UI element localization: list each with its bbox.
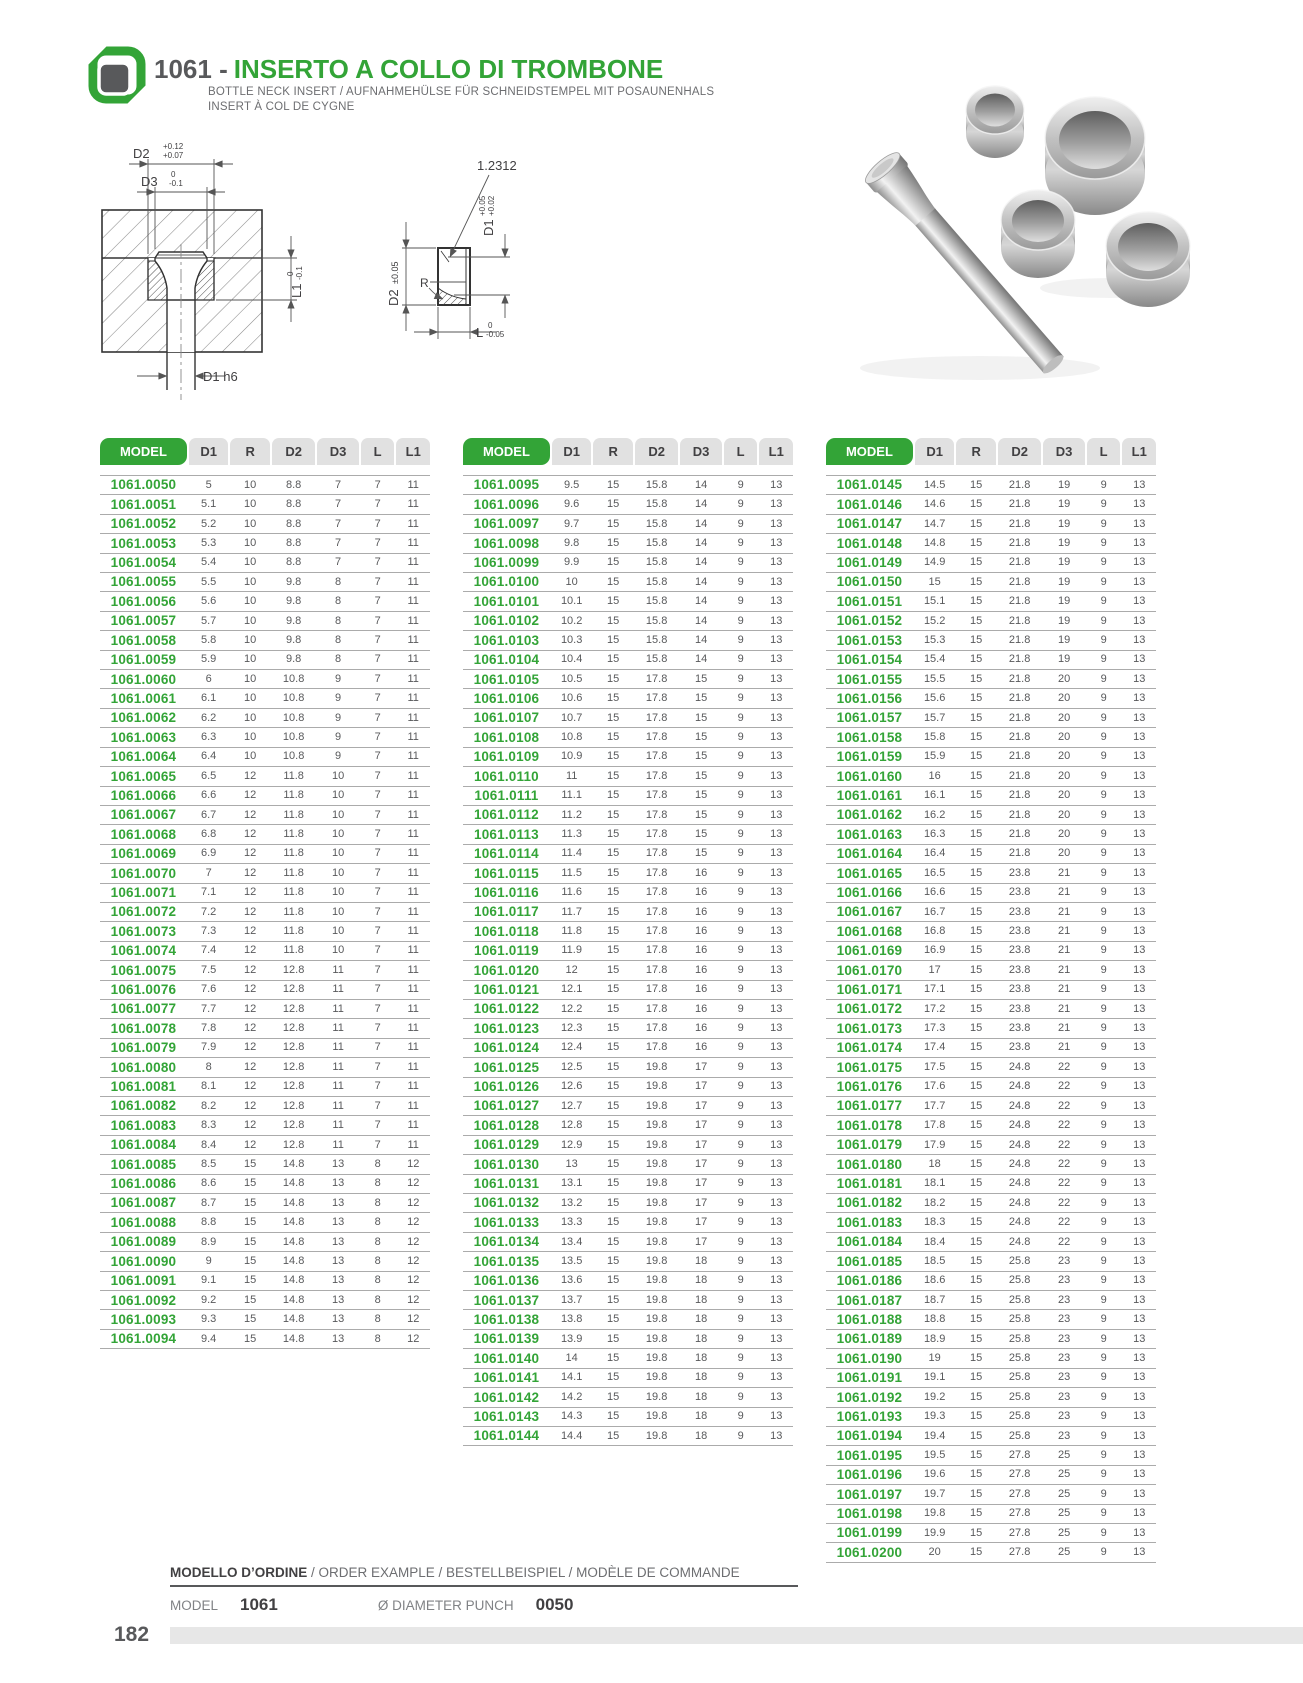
value-cell: 21.8 (998, 654, 1041, 665)
value-cell: 15.8 (635, 557, 678, 568)
model-cell: 1061.0078 (100, 1022, 187, 1036)
value-cell: 11 (396, 732, 430, 743)
model-cell: 1061.0148 (826, 537, 913, 551)
table-row: 1061.019319.31525.823913 (826, 1408, 1156, 1427)
value-cell: 27.8 (998, 1547, 1041, 1558)
value-cell: 11 (396, 713, 430, 724)
table-row: 1061.017217.21523.821913 (826, 1000, 1156, 1019)
value-cell: 13.8 (552, 1314, 592, 1325)
value-cell: 25.8 (998, 1372, 1041, 1383)
value-cell: 9.3 (189, 1314, 229, 1325)
value-cell: 15 (593, 616, 633, 627)
table-row: 1061.016316.31521.820913 (826, 825, 1156, 844)
table-row: 1061.010810.81517.815913 (463, 728, 793, 747)
value-cell: 9 (1087, 887, 1121, 898)
model-cell: 1061.0149 (826, 556, 913, 570)
value-cell: 19.8 (635, 1295, 678, 1306)
value-cell: 9.8 (272, 654, 315, 665)
dim-l-label: L (476, 325, 483, 340)
value-cell: 10.7 (552, 713, 592, 724)
value-cell: 11 (396, 1140, 430, 1151)
value-cell: 11 (396, 771, 430, 782)
model-cell: 1061.0179 (826, 1138, 913, 1152)
value-cell: 11 (317, 1023, 358, 1034)
model-cell: 1061.0068 (100, 828, 187, 842)
value-cell: 19.8 (635, 1217, 678, 1228)
value-cell: 12.5 (552, 1062, 592, 1073)
value-cell: 19 (1043, 519, 1084, 530)
value-cell: 9 (724, 732, 758, 743)
column-header: D2 (998, 438, 1041, 465)
value-cell: 24.8 (998, 1120, 1041, 1131)
value-cell: 12.6 (552, 1081, 592, 1092)
value-cell: 10 (317, 829, 358, 840)
model-cell: 1061.0127 (463, 1099, 550, 1113)
model-cell: 1061.0139 (463, 1332, 550, 1346)
brand-logo-icon (88, 46, 146, 104)
model-table-3: MODELD1RD2D3LL11061.014514.51521.8199131… (826, 438, 1156, 1563)
value-cell: 14.8 (272, 1159, 315, 1170)
table-body: 1061.00505108.877111061.00515.1108.87711… (100, 475, 430, 1349)
value-cell: 9 (724, 1198, 758, 1209)
table-row: 1061.0130131519.817913 (463, 1155, 793, 1174)
value-cell: 17.8 (635, 829, 678, 840)
value-cell: 12.8 (272, 984, 315, 995)
value-cell: 7 (361, 848, 395, 859)
table-row: 1061.012912.91519.817913 (463, 1136, 793, 1155)
value-cell: 13 (1122, 1431, 1156, 1442)
table-row: 1061.018618.61525.823913 (826, 1272, 1156, 1291)
value-cell: 15 (593, 499, 633, 510)
value-cell: 7 (361, 907, 395, 918)
model-cell: 1061.0064 (100, 750, 187, 764)
value-cell: 15 (593, 1275, 633, 1286)
value-cell: 13 (1122, 1411, 1156, 1422)
value-cell: 18.2 (915, 1198, 955, 1209)
value-cell: 15 (593, 1353, 633, 1364)
value-cell: 15 (956, 1023, 996, 1034)
value-cell: 15 (230, 1295, 270, 1306)
value-cell: 11 (396, 1120, 430, 1131)
value-cell: 12.9 (552, 1140, 592, 1151)
value-cell: 21 (1043, 965, 1084, 976)
model-cell: 1061.0072 (100, 905, 187, 919)
value-cell: 18.7 (915, 1295, 955, 1306)
value-cell: 15 (680, 693, 721, 704)
value-cell: 24.8 (998, 1081, 1041, 1092)
value-cell: 7 (361, 674, 395, 685)
value-cell: 17 (915, 965, 955, 976)
model-cell: 1061.0191 (826, 1371, 913, 1385)
table-row: 1061.012312.31517.816913 (463, 1019, 793, 1038)
value-cell: 13 (759, 1237, 793, 1248)
value-cell: 23 (1043, 1392, 1084, 1403)
value-cell: 9 (724, 1353, 758, 1364)
value-cell: 9.1 (189, 1275, 229, 1286)
table-row: 1061.00888.81514.813812 (100, 1213, 430, 1232)
value-cell: 8 (361, 1295, 395, 1306)
model-cell: 1061.0061 (100, 692, 187, 706)
model-cell: 1061.0097 (463, 517, 550, 531)
value-cell: 9 (724, 557, 758, 568)
value-cell: 11 (396, 829, 430, 840)
table-body: 1061.00959.51515.8149131061.00969.61515.… (463, 475, 793, 1446)
value-cell: 23 (1043, 1295, 1084, 1306)
value-cell: 15 (593, 1237, 633, 1248)
table-row: 1061.012212.21517.816913 (463, 1000, 793, 1019)
value-cell: 7.4 (189, 945, 229, 956)
value-cell: 18 (680, 1295, 721, 1306)
model-cell: 1061.0190 (826, 1352, 913, 1366)
value-cell: 8.8 (272, 557, 315, 568)
value-cell: 9 (1087, 1314, 1121, 1325)
value-cell: 10 (230, 480, 270, 491)
value-cell: 10 (230, 616, 270, 627)
value-cell: 11 (396, 965, 430, 976)
table-row: 1061.016816.81523.821913 (826, 922, 1156, 941)
table-row: 1061.011111.11517.815913 (463, 787, 793, 806)
value-cell: 8 (361, 1314, 395, 1325)
table-row: 1061.016216.21521.820913 (826, 806, 1156, 825)
model-cell: 1061.0117 (463, 905, 550, 919)
value-cell: 6.8 (189, 829, 229, 840)
value-cell: 24.8 (998, 1198, 1041, 1209)
model-cell: 1061.0052 (100, 517, 187, 531)
value-cell: 15 (593, 1159, 633, 1170)
value-cell: 7 (361, 635, 395, 646)
value-cell: 13 (759, 519, 793, 530)
value-cell: 23 (1043, 1334, 1084, 1345)
value-cell: 15 (593, 1217, 633, 1228)
table-row: 1061.013113.11519.817913 (463, 1175, 793, 1194)
value-cell: 15.8 (635, 654, 678, 665)
table-row: 1061.00777.71212.811711 (100, 1000, 430, 1019)
value-cell: 12 (230, 926, 270, 937)
value-cell: 10 (230, 751, 270, 762)
value-cell: 21.8 (998, 674, 1041, 685)
value-cell: 25 (1043, 1508, 1084, 1519)
value-cell: 16.5 (915, 868, 955, 879)
value-cell: 5.2 (189, 519, 229, 530)
value-cell: 9 (1087, 1178, 1121, 1189)
value-cell: 13 (759, 771, 793, 782)
model-cell: 1061.0087 (100, 1196, 187, 1210)
value-cell: 8 (361, 1217, 395, 1228)
value-cell: 15 (593, 829, 633, 840)
value-cell: 15 (593, 577, 633, 588)
model-cell: 1061.0119 (463, 944, 550, 958)
table-row: 1061.017817.81524.822913 (826, 1116, 1156, 1135)
value-cell: 15 (680, 848, 721, 859)
value-cell: 21 (1043, 907, 1084, 918)
value-cell: 9 (724, 1256, 758, 1267)
table-row: 1061.00636.31010.89711 (100, 728, 430, 747)
model-cell: 1061.0095 (463, 478, 550, 492)
value-cell: 19.8 (635, 1256, 678, 1267)
value-cell: 21.8 (998, 751, 1041, 762)
value-cell: 9 (724, 693, 758, 704)
value-cell: 15 (956, 1217, 996, 1228)
value-cell: 10 (317, 945, 358, 956)
value-cell: 17.8 (635, 887, 678, 898)
model-cell: 1061.0185 (826, 1255, 913, 1269)
model-cell: 1061.0056 (100, 595, 187, 609)
value-cell: 19.8 (635, 1140, 678, 1151)
value-cell: 23.8 (998, 887, 1041, 898)
value-cell: 7.3 (189, 926, 229, 937)
value-cell: 12.8 (272, 1101, 315, 1112)
value-cell: 20 (1043, 810, 1084, 821)
value-cell: 15 (956, 1450, 996, 1461)
table-row: 1061.017617.61524.822913 (826, 1078, 1156, 1097)
value-cell: 9 (1087, 1275, 1121, 1286)
value-cell: 13 (1122, 1547, 1156, 1558)
order-example-heading: MODELLO D’ORDINE / ORDER EXAMPLE / BESTE… (170, 1565, 798, 1587)
table-row: 1061.00666.61211.810711 (100, 787, 430, 806)
value-cell: 15 (593, 1140, 633, 1151)
value-cell: 7.1 (189, 887, 229, 898)
model-cell: 1061.0184 (826, 1235, 913, 1249)
value-cell: 15 (956, 1508, 996, 1519)
value-cell: 15 (956, 674, 996, 685)
model-cell: 1061.0080 (100, 1061, 187, 1075)
table-row: 1061.00525.2108.87711 (100, 515, 430, 534)
value-cell: 14 (680, 557, 721, 568)
value-cell: 11 (552, 771, 592, 782)
value-cell: 16 (680, 887, 721, 898)
value-cell: 13.6 (552, 1275, 592, 1286)
value-cell: 9.8 (272, 635, 315, 646)
value-cell: 19.8 (635, 1411, 678, 1422)
value-cell: 8 (317, 616, 358, 627)
value-cell: 22 (1043, 1178, 1084, 1189)
value-cell: 7 (361, 1004, 395, 1015)
model-cell: 1061.0086 (100, 1177, 187, 1191)
value-cell: 7 (361, 519, 395, 530)
model-cell: 1061.0133 (463, 1216, 550, 1230)
value-cell: 9 (1087, 538, 1121, 549)
value-cell: 19.8 (635, 1275, 678, 1286)
value-cell: 14.9 (915, 557, 955, 568)
model-cell: 1061.0069 (100, 847, 187, 861)
table-row: 1061.015815.81521.820913 (826, 728, 1156, 747)
material-callout: 1.2312 (477, 158, 517, 173)
value-cell: 17.8 (635, 945, 678, 956)
value-cell: 12.8 (272, 965, 315, 976)
value-cell: 8.8 (272, 480, 315, 491)
table-row: 1061.013613.61519.818913 (463, 1272, 793, 1291)
table-row: 1061.00727.21211.810711 (100, 903, 430, 922)
value-cell: 15 (956, 1004, 996, 1015)
value-cell: 15 (230, 1314, 270, 1325)
value-cell: 13 (317, 1178, 358, 1189)
value-cell: 21.8 (998, 557, 1041, 568)
value-cell: 15.8 (635, 499, 678, 510)
value-cell: 7 (317, 557, 358, 568)
value-cell: 13 (759, 1023, 793, 1034)
table-row: 1061.00505108.87711 (100, 476, 430, 495)
value-cell: 8 (361, 1178, 395, 1189)
table-row: 1061.015415.41521.819913 (826, 651, 1156, 670)
value-cell: 15 (956, 635, 996, 646)
value-cell: 10 (317, 926, 358, 937)
value-cell: 11.8 (272, 907, 315, 918)
value-cell: 12 (230, 868, 270, 879)
value-cell: 14.5 (915, 480, 955, 491)
value-cell: 7 (361, 538, 395, 549)
value-cell: 6.7 (189, 810, 229, 821)
value-cell: 20 (1043, 732, 1084, 743)
value-cell: 15 (956, 596, 996, 607)
value-cell: 12 (230, 1140, 270, 1151)
value-cell: 23 (1043, 1256, 1084, 1267)
value-cell: 17.8 (635, 1023, 678, 1034)
model-column-header: MODEL (826, 438, 913, 465)
value-cell: 9 (1087, 1411, 1121, 1422)
value-cell: 11 (396, 1081, 430, 1092)
table-row: 1061.00878.71514.813812 (100, 1194, 430, 1213)
value-cell: 15 (956, 984, 996, 995)
model-cell: 1061.0123 (463, 1022, 550, 1036)
value-cell: 17.8 (635, 771, 678, 782)
value-cell: 15 (956, 751, 996, 762)
table-row: 1061.010610.61517.815913 (463, 689, 793, 708)
value-cell: 9 (317, 693, 358, 704)
value-cell: 19.7 (915, 1489, 955, 1500)
value-cell: 13 (759, 965, 793, 976)
value-cell: 23 (1043, 1275, 1084, 1286)
value-cell: 12 (230, 1004, 270, 1015)
table-header-row: MODELD1RD2D3LL1 (463, 438, 793, 465)
value-cell: 7 (361, 751, 395, 762)
value-cell: 22 (1043, 1159, 1084, 1170)
value-cell: 13 (759, 1159, 793, 1170)
value-cell: 19.9 (915, 1528, 955, 1539)
value-cell: 14.8 (272, 1237, 315, 1248)
value-cell: 17.8 (635, 693, 678, 704)
model-cell: 1061.0118 (463, 925, 550, 939)
title-block: 1061 -INSERTO A COLLO DI TROMBONE BOTTLE… (154, 46, 714, 115)
value-cell: 13 (317, 1275, 358, 1286)
value-cell: 25 (1043, 1469, 1084, 1480)
table-row: 1061.010910.91517.815913 (463, 748, 793, 767)
value-cell: 17.8 (635, 1042, 678, 1053)
table-row: 1061.015215.21521.819913 (826, 612, 1156, 631)
value-cell: 13 (759, 538, 793, 549)
value-cell: 15.8 (635, 519, 678, 530)
value-cell: 18.9 (915, 1334, 955, 1345)
model-cell: 1061.0142 (463, 1391, 550, 1405)
table-row: 1061.0100101515.814913 (463, 573, 793, 592)
value-cell: 21.8 (998, 480, 1041, 491)
value-cell: 11 (396, 557, 430, 568)
model-cell: 1061.0197 (826, 1488, 913, 1502)
value-cell: 10 (317, 848, 358, 859)
model-cell: 1061.0092 (100, 1294, 187, 1308)
value-cell: 11.6 (552, 887, 592, 898)
table-row: 1061.017417.41523.821913 (826, 1039, 1156, 1058)
model-cell: 1061.0094 (100, 1332, 187, 1346)
value-cell: 22 (1043, 1120, 1084, 1131)
model-cell: 1061.0053 (100, 537, 187, 551)
value-cell: 11 (317, 1081, 358, 1092)
value-cell: 13 (1122, 1140, 1156, 1151)
value-cell: 19.4 (915, 1431, 955, 1442)
value-cell: 23.8 (998, 945, 1041, 956)
value-cell: 13 (759, 810, 793, 821)
value-cell: 11.8 (272, 771, 315, 782)
value-cell: 9 (1087, 848, 1121, 859)
value-cell: 19.8 (635, 1081, 678, 1092)
value-cell: 21.8 (998, 848, 1041, 859)
model-cell: 1061.0116 (463, 886, 550, 900)
model-cell: 1061.0132 (463, 1196, 550, 1210)
column-header: R (593, 438, 633, 465)
table-row: 1061.018118.11524.822913 (826, 1175, 1156, 1194)
value-cell: 19 (1043, 499, 1084, 510)
value-cell: 12 (230, 1062, 270, 1073)
value-cell: 21 (1043, 1023, 1084, 1034)
value-cell: 22 (1043, 1062, 1084, 1073)
value-cell: 19.8 (635, 1178, 678, 1189)
value-cell: 10 (230, 693, 270, 704)
model-cell: 1061.0108 (463, 731, 550, 745)
model-cell: 1061.0143 (463, 1410, 550, 1424)
value-cell: 22 (1043, 1081, 1084, 1092)
value-cell: 7 (361, 557, 395, 568)
value-cell: 13 (1122, 1042, 1156, 1053)
value-cell: 11 (396, 596, 430, 607)
value-cell: 9 (1087, 577, 1121, 588)
value-cell: 7 (361, 965, 395, 976)
value-cell: 21.8 (998, 771, 1041, 782)
model-cell: 1061.0150 (826, 575, 913, 589)
value-cell: 21.8 (998, 577, 1041, 588)
model-cell: 1061.0076 (100, 983, 187, 997)
model-cell: 1061.0107 (463, 711, 550, 725)
value-cell: 12 (230, 887, 270, 898)
model-cell: 1061.0112 (463, 808, 550, 822)
value-cell: 14.7 (915, 519, 955, 530)
table-row: 1061.010210.21515.814913 (463, 612, 793, 631)
value-cell: 12 (230, 1120, 270, 1131)
model-cell: 1061.0130 (463, 1158, 550, 1172)
value-cell: 9 (724, 907, 758, 918)
table-row: 1061.0200201527.825913 (826, 1543, 1156, 1562)
model-cell: 1061.0075 (100, 964, 187, 978)
value-cell: 12 (230, 1023, 270, 1034)
value-cell: 8.7 (189, 1198, 229, 1209)
order-heading-translations: / ORDER EXAMPLE / BESTELLBEISPIEL / MODÈ… (307, 1565, 739, 1580)
value-cell: 14.3 (552, 1411, 592, 1422)
model-cell: 1061.0113 (463, 828, 550, 842)
table-row: 1061.014914.91521.819913 (826, 554, 1156, 573)
model-table-2: MODELD1RD2D3LL11061.00959.51515.81491310… (463, 438, 793, 1446)
value-cell: 15 (956, 1469, 996, 1480)
value-cell: 13 (1122, 732, 1156, 743)
value-cell: 18 (680, 1392, 721, 1403)
model-cell: 1061.0178 (826, 1119, 913, 1133)
model-cell: 1061.0156 (826, 692, 913, 706)
value-cell: 13 (1122, 1004, 1156, 1015)
table-row: 1061.00898.91514.813812 (100, 1233, 430, 1252)
value-cell: 7.8 (189, 1023, 229, 1034)
value-cell: 16 (680, 1042, 721, 1053)
value-cell: 9 (1087, 1237, 1121, 1248)
table-row: 1061.014414.41519.818913 (463, 1427, 793, 1446)
value-cell: 16.6 (915, 887, 955, 898)
model-cell: 1061.0189 (826, 1332, 913, 1346)
